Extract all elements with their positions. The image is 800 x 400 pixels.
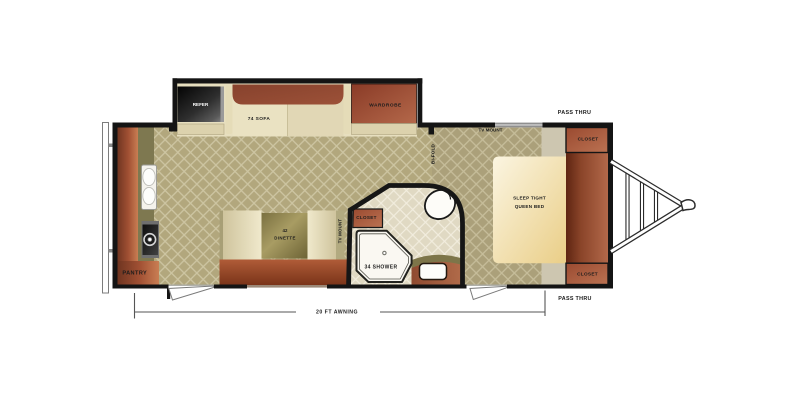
svg-text:42: 42	[283, 228, 288, 233]
svg-text:QUEEN BED: QUEEN BED	[515, 204, 545, 209]
svg-text:DINETTE: DINETTE	[274, 235, 296, 240]
svg-text:TV MOUNT: TV MOUNT	[338, 219, 343, 244]
svg-text:CLOSET: CLOSET	[577, 272, 598, 277]
svg-text:REFER: REFER	[193, 102, 209, 107]
svg-text:PASS THRU: PASS THRU	[558, 110, 591, 116]
svg-text:74 SOFA: 74 SOFA	[248, 116, 271, 122]
svg-text:CLOSET: CLOSET	[578, 136, 599, 141]
svg-text:WARDROBE: WARDROBE	[369, 103, 402, 109]
svg-text:TV MOUNT: TV MOUNT	[479, 127, 503, 132]
svg-text:PASS THRU: PASS THRU	[558, 296, 591, 302]
svg-text:SLEEP TIGHT: SLEEP TIGHT	[513, 196, 546, 201]
svg-text:CLOSET: CLOSET	[356, 215, 376, 220]
svg-text:PANTRY: PANTRY	[122, 271, 147, 277]
svg-text:34 SHOWER: 34 SHOWER	[364, 265, 397, 271]
svg-text:BI-FOLD: BI-FOLD	[430, 144, 435, 165]
svg-text:20 FT AWNING: 20 FT AWNING	[316, 310, 358, 316]
